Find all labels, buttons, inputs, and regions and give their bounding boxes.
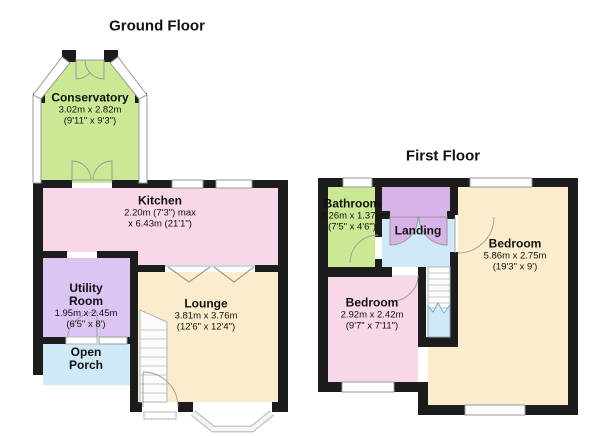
first-floor-title: First Floor: [406, 148, 480, 165]
room-label-bedroom1: Bedroom 5.86m x 2.75m (19'3" x 9'): [484, 238, 547, 273]
threshold: [66, 337, 97, 344]
bathroom-window-icon: [343, 178, 372, 187]
bedroom2-window-icon: [342, 382, 394, 392]
bay-window-icon: [193, 413, 272, 429]
stairs-first-floor-icon: [428, 267, 450, 337]
ground-floor-title: Ground Floor: [109, 18, 205, 35]
room-label-landing: Landing: [395, 225, 442, 238]
kitchen-window-icon: [216, 180, 252, 188]
floor-plan: Ground Floor First Floor Conservatory 3.…: [0, 0, 600, 436]
kitchen-window-icon: [172, 180, 203, 188]
room-label-open-porch: Open Porch: [69, 346, 103, 372]
threshold: [144, 412, 176, 419]
landing-cupboard-fill: [382, 187, 455, 217]
room-label-kitchen: Kitchen 2.20m (7'3") max x 6.43m (21'1"): [124, 195, 196, 230]
bedroom1-window-icon: [465, 405, 525, 415]
room-label-utility: Utility Room 1.95m x 2.45m (6'5" x 8'): [55, 282, 118, 330]
room-label-lounge: Lounge 3.81m x 3.76m (12'6" x 12'4"): [175, 298, 238, 333]
bedroom1-window-icon: [470, 178, 532, 187]
conservatory-window-icon: [33, 95, 41, 183]
room-label-bedroom2: Bedroom 2.92m x 2.42m (9'7" x 7'11"): [341, 297, 404, 332]
room-label-bathroom: Bathroom 2.26m x 1.37m (7'5" x 4'6"): [321, 198, 384, 233]
utility-window-icon: [99, 337, 127, 344]
room-label-conservatory: Conservatory 3.02m x 2.82m (9'11" x 9'3"…: [51, 92, 128, 127]
stairs-ground-floor-icon: [140, 310, 167, 402]
conservatory-window-icon: [139, 95, 147, 183]
